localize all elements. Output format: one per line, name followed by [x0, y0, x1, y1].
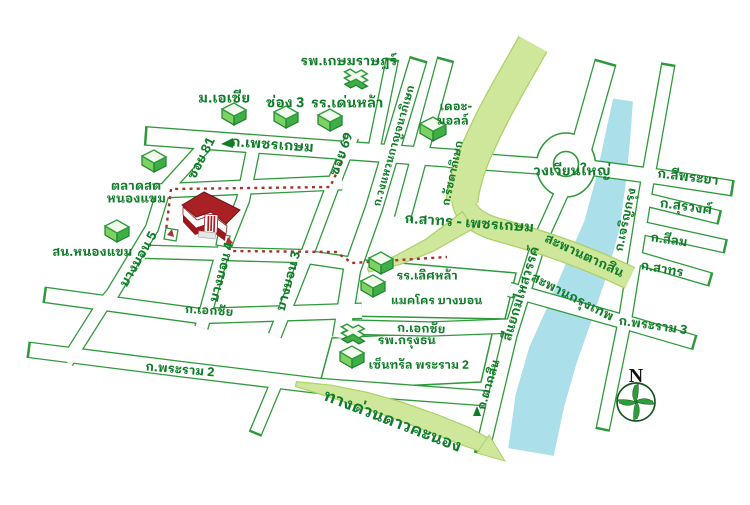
svg-text:N: N — [629, 365, 644, 387]
